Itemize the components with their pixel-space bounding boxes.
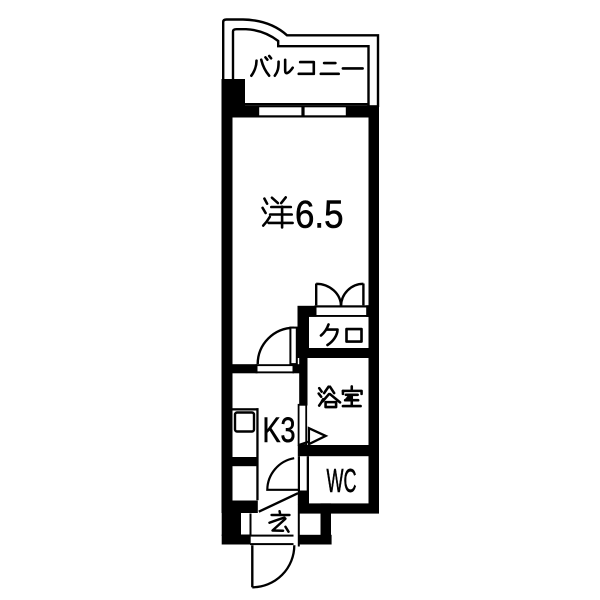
svg-text:K3: K3 [263,411,296,450]
svg-text:6.5: 6.5 [295,193,344,236]
svg-text:WC: WC [327,462,357,499]
